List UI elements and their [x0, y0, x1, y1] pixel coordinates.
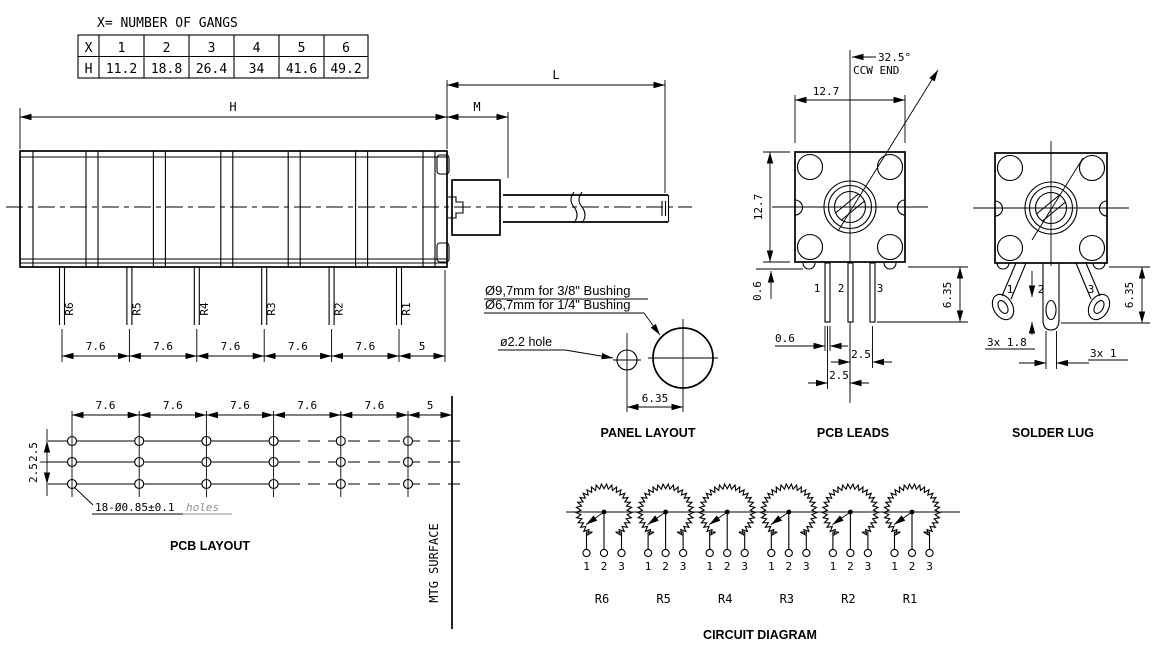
pcb-leads-title: PCB LEADS [817, 426, 889, 440]
panel-layout-title: PANEL LAYOUT [601, 426, 696, 440]
gang-table-title: X= NUMBER OF GANGS [97, 16, 238, 31]
dim-pin-spacing: 5 [419, 340, 426, 353]
pot-label: R3 [780, 592, 794, 606]
terminal-circle [803, 549, 810, 556]
potentiometer-symbols: 123R6123R5123R4123R3123R2123R1 [576, 484, 940, 606]
dim-row-pitch: 2.5 [27, 463, 40, 483]
lead-1 [825, 263, 830, 322]
terminal-number: 1 [768, 560, 775, 573]
pot-body [20, 151, 447, 267]
standoff-foot [997, 263, 1009, 269]
pin-number: 3 [877, 282, 884, 295]
dim-pitch-12: 2.5 [829, 369, 849, 382]
terminal-number: 1 [891, 560, 898, 573]
pin-number: 2 [1038, 283, 1045, 296]
terminal-circle [741, 549, 748, 556]
terminal-number: 2 [601, 560, 608, 573]
angle-label: 32.5° [878, 51, 911, 64]
panel-hole-note: ø2.2 hole [500, 335, 552, 349]
potentiometer-symbol: 123R3 [761, 484, 817, 606]
hole-leader [565, 350, 613, 358]
table-cell: 1 [118, 41, 126, 56]
table-cell: 49.2 [330, 62, 361, 77]
potentiometer-symbol: 123R1 [884, 484, 940, 606]
dim-lead-length: 6.35 [941, 282, 954, 309]
terminal-circle [864, 549, 871, 556]
pot-label: R1 [903, 592, 917, 606]
standoff-foot [884, 263, 896, 269]
table-cell: 6 [342, 41, 350, 56]
terminal-number: 2 [662, 560, 669, 573]
terminal-circle [908, 549, 915, 556]
dim-pin-spacing: 7.6 [153, 340, 173, 353]
bushing-note-2: Ø6,7mm for 1/4" Bushing [485, 297, 631, 312]
holes-note-suffix: holes [186, 501, 219, 514]
shaft-break-line [571, 192, 577, 223]
dim-col-spacing: 7.6 [96, 399, 116, 412]
shaft-break-line [579, 192, 585, 223]
table-cell: 26.4 [196, 62, 227, 77]
dim-pin-spacing: 7.6 [86, 340, 106, 353]
pin-number: 3 [1088, 283, 1095, 296]
circuit-diagram: 123R6123R5123R4123R3123R2123R1 CIRCUIT D… [566, 484, 960, 642]
terminal-number: 3 [803, 560, 810, 573]
gang-table: X= NUMBER OF GANGS X 1 2 3 4 5 6 H 11.2 … [78, 16, 368, 78]
dim-m: M [473, 100, 480, 114]
terminal-circle [600, 549, 607, 556]
table-cell: 2 [163, 41, 171, 56]
pin-number: 2 [838, 282, 845, 295]
terminal-circle [926, 549, 933, 556]
mounting-post [798, 155, 823, 180]
anti-rotation-tab [447, 197, 463, 218]
panel-layout-view: Ø9,7mm for 3/8" Bushing Ø6,7mm for 1/4" … [484, 283, 718, 440]
pot-label: R5 [656, 592, 670, 606]
pcb-layout-view: 7.67.67.67.67.65 2.5 2.5 18-Ø0.85±0.1 ho… [27, 396, 468, 629]
side-pin-label: R4 [198, 302, 211, 316]
terminal-circle [662, 549, 669, 556]
terminal-number: 1 [706, 560, 713, 573]
circuit-diagram-title: CIRCUIT DIAGRAM [703, 628, 817, 642]
terminal-number: 1 [645, 560, 652, 573]
wiper-arrow [771, 512, 789, 525]
holes-note: 18-Ø0.85±0.1 [95, 501, 174, 514]
terminal-number: 3 [618, 560, 625, 573]
terminal-circle [618, 549, 625, 556]
wiper-arrow [648, 512, 666, 525]
table-cell: 3 [208, 41, 216, 56]
solder-lug-view: 1 2 3 3x 1.8 3x 1 6.35 SOLDER LUG [973, 141, 1150, 440]
terminal-number: 3 [741, 560, 748, 573]
terminal-circle [768, 549, 775, 556]
side-pin-label: R3 [265, 302, 278, 315]
side-view-pin-dims: 7.67.67.67.67.65 [62, 270, 445, 362]
mounting-post [878, 235, 903, 260]
dim-col-spacing: 7.6 [364, 399, 384, 412]
terminal-number: 1 [583, 560, 590, 573]
terminal-circle [645, 549, 652, 556]
pcb-leads-view: 32.5° CCW END 12.7 1 2 3 12.7 [751, 50, 968, 440]
dim-col-spacing: 5 [427, 399, 434, 412]
dim-pitch-23: 2.5 [851, 348, 871, 361]
dim-lug-length: 6.35 [1123, 282, 1136, 309]
pot-label: R2 [841, 592, 855, 606]
dim-h: H [229, 100, 236, 114]
lead-2 [848, 263, 853, 322]
potentiometer-symbol: 123R2 [822, 484, 878, 606]
terminal-number: 2 [724, 560, 731, 573]
lead-3 [870, 263, 875, 322]
drawing-sheet: X= NUMBER OF GANGS X 1 2 3 4 5 6 H 11.2 … [0, 0, 1153, 663]
terminal-number: 3 [865, 560, 872, 573]
terminal-number: 1 [830, 560, 837, 573]
dim-width: 12.7 [813, 85, 840, 98]
potentiometer-symbol: 123R4 [699, 484, 755, 606]
dim-lug-thickness: 3x 1 [1090, 347, 1117, 360]
terminal-circle [847, 549, 854, 556]
solder-lug-1 [988, 291, 1018, 324]
solder-lug-title: SOLDER LUG [1012, 426, 1094, 440]
side-pin-label: R1 [400, 302, 413, 315]
dim-standoff: 0.6 [751, 281, 764, 301]
table-cell: 41.6 [286, 62, 317, 77]
dim-pin-spacing: 7.6 [355, 340, 375, 353]
mounting-post [878, 155, 903, 180]
bushing-leader [644, 313, 660, 335]
terminal-circle [583, 549, 590, 556]
table-cell: 4 [253, 41, 261, 56]
dim-row-pitch: 2.5 [27, 442, 40, 462]
terminal-number: 3 [680, 560, 687, 573]
dim-col-spacing: 7.6 [163, 399, 183, 412]
side-view-pins: R6R5R4R3R2R1 [60, 267, 414, 325]
mounting-post [798, 235, 823, 260]
standoff-foot [803, 263, 815, 269]
side-pin-label: R5 [130, 302, 143, 315]
terminal-number: 2 [909, 560, 916, 573]
wiper-arrow [832, 512, 850, 525]
pcb-hole-grid: 7.67.67.67.67.65 [48, 399, 468, 497]
dim-col-spacing: 7.6 [297, 399, 317, 412]
standoff-foot [1093, 263, 1105, 269]
table-cell: 18.8 [151, 62, 182, 77]
mounting-post [998, 156, 1023, 181]
bushing [452, 180, 500, 235]
side-pin-label: R2 [333, 302, 346, 315]
table-cell: X [85, 41, 93, 56]
table-cell: 5 [298, 41, 306, 56]
potentiometer-symbol: 123R5 [638, 484, 694, 606]
table-cell: 11.2 [106, 62, 137, 77]
pcb-layout-title: PCB LAYOUT [170, 539, 250, 553]
wiper-arrow [894, 512, 912, 525]
bushing-note-1: Ø9,7mm for 3/8" Bushing [485, 283, 631, 298]
mtg-surface-label: MTG SURFACE [427, 523, 441, 602]
terminal-circle [680, 549, 687, 556]
side-view: H M L R6R5R4R3R2R1 7.67.67.67.67.65 [6, 68, 692, 362]
wiper-arrow [586, 512, 604, 525]
terminal-circle [829, 549, 836, 556]
potentiometer-technical-drawing: X= NUMBER OF GANGS X 1 2 3 4 5 6 H 11.2 … [0, 0, 1153, 663]
pot-label: R4 [718, 592, 732, 606]
pin-number: 1 [1007, 283, 1014, 296]
terminal-number: 3 [926, 560, 933, 573]
gang-dividers [33, 151, 435, 267]
potentiometer-symbol: 123R6 [576, 484, 632, 606]
wiper-arrow [709, 512, 727, 525]
terminal-circle [891, 549, 898, 556]
dim-lug-hole: 3x 1.8 [987, 336, 1027, 349]
ccw-end-label: CCW END [853, 64, 899, 77]
dim-pin-spacing: 7.6 [221, 340, 241, 353]
table-cell: H [85, 62, 93, 77]
dim-height: 12.7 [752, 194, 765, 221]
dim-lead-width: 0.6 [775, 332, 795, 345]
mounting-post [1080, 156, 1105, 181]
terminal-circle [785, 549, 792, 556]
dim-col-spacing: 7.6 [230, 399, 250, 412]
terminal-circle [724, 549, 731, 556]
mounting-post [1080, 236, 1105, 261]
terminal-number: 2 [847, 560, 854, 573]
dim-pin-spacing: 7.6 [288, 340, 308, 353]
table-cell: 34 [249, 62, 265, 77]
terminal-number: 2 [785, 560, 792, 573]
terminal-circle [706, 549, 713, 556]
dim-l: L [552, 68, 559, 82]
pot-label: R6 [595, 592, 609, 606]
dim-hole-distance: 6.35 [642, 392, 669, 405]
pin-number: 1 [814, 282, 821, 295]
mounting-post [998, 236, 1023, 261]
side-pin-label: R6 [63, 302, 76, 315]
